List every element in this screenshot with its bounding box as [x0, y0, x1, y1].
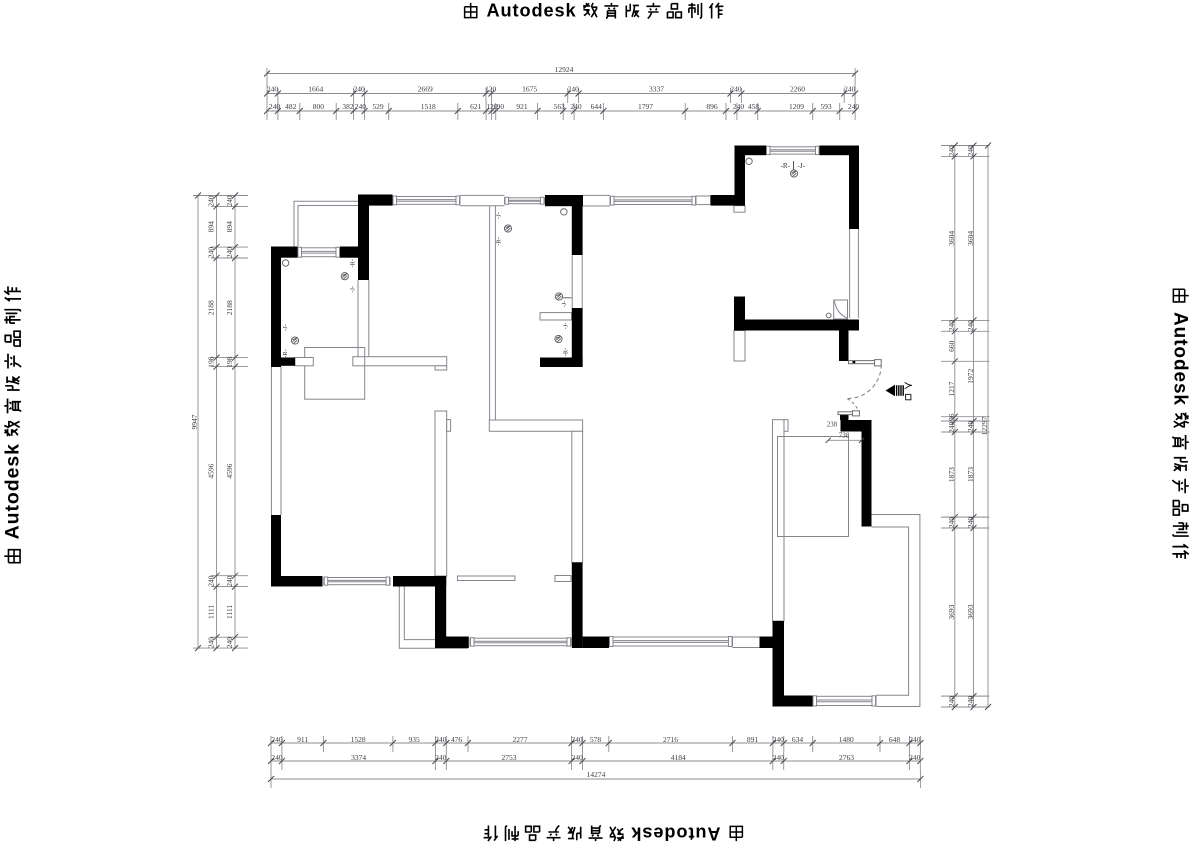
svg-text:1518: 1518 [421, 102, 436, 111]
svg-text:563: 563 [554, 102, 566, 111]
svg-text:240: 240 [966, 320, 975, 332]
svg-text:911: 911 [297, 735, 308, 744]
svg-text:1528: 1528 [351, 735, 366, 744]
svg-text:648: 648 [889, 735, 901, 744]
svg-text:482: 482 [285, 102, 297, 111]
svg-text:240: 240 [947, 696, 956, 708]
svg-text:1111: 1111 [225, 605, 234, 619]
svg-text:935: 935 [408, 735, 420, 744]
svg-text:240: 240 [207, 247, 216, 259]
svg-text:3374: 3374 [351, 753, 366, 762]
svg-text:1217: 1217 [947, 381, 956, 396]
svg-text:240: 240 [271, 753, 283, 762]
svg-text:240: 240 [225, 637, 234, 649]
svg-text:1480: 1480 [839, 735, 854, 744]
svg-text:-J-: -J- [563, 323, 570, 330]
svg-text:4596: 4596 [225, 463, 234, 478]
svg-text:240: 240 [568, 85, 580, 94]
svg-text:-R-: -R- [781, 162, 791, 170]
svg-text:-J-: -J- [561, 301, 568, 308]
svg-text:-J-: -J- [350, 286, 357, 293]
svg-text:578: 578 [590, 735, 602, 744]
svg-text:240: 240 [207, 195, 216, 207]
svg-text:240: 240 [947, 320, 956, 332]
svg-text:921: 921 [516, 102, 528, 111]
svg-text:1675: 1675 [522, 85, 537, 94]
svg-text:240: 240 [207, 637, 216, 649]
svg-text:3604: 3604 [966, 231, 975, 246]
svg-text:2277: 2277 [513, 735, 528, 744]
svg-text:120: 120 [485, 85, 497, 94]
svg-text:198: 198 [207, 356, 216, 368]
svg-text:240: 240 [571, 735, 583, 744]
svg-text:240: 240 [773, 735, 785, 744]
svg-text:12297: 12297 [980, 416, 989, 435]
svg-text:4184: 4184 [671, 753, 686, 762]
svg-text:-R-: -R- [563, 348, 570, 357]
svg-text:1797: 1797 [638, 102, 653, 111]
svg-text:660: 660 [947, 340, 956, 352]
svg-text:240: 240 [353, 85, 365, 94]
svg-text:240: 240 [966, 696, 975, 708]
svg-text:240: 240 [271, 735, 283, 744]
svg-text:2669: 2669 [418, 85, 433, 94]
svg-text:-J-: -J- [798, 162, 806, 170]
svg-text:529: 529 [372, 102, 384, 111]
svg-text:240: 240 [733, 102, 745, 111]
svg-text:14274: 14274 [587, 770, 606, 779]
svg-text:240: 240 [267, 85, 279, 94]
svg-text:621: 621 [470, 102, 482, 111]
svg-text:644: 644 [591, 102, 603, 111]
svg-text:240: 240 [773, 753, 785, 762]
svg-text:458: 458 [748, 102, 760, 111]
svg-text:240: 240 [225, 195, 234, 207]
svg-text:240: 240 [269, 102, 281, 111]
svg-text:90: 90 [497, 102, 505, 111]
svg-text:240: 240 [909, 753, 921, 762]
svg-text:240: 240 [355, 102, 367, 111]
svg-text:240: 240 [207, 575, 216, 587]
svg-text:240: 240 [947, 517, 956, 529]
svg-text:240: 240 [435, 753, 447, 762]
svg-text:3604: 3604 [947, 231, 956, 246]
svg-text:240: 240 [225, 247, 234, 259]
svg-text:3693: 3693 [947, 604, 956, 619]
svg-text:1972: 1972 [966, 368, 975, 383]
svg-text:476: 476 [451, 735, 463, 744]
svg-text:198: 198 [225, 356, 234, 368]
svg-text:2763: 2763 [839, 753, 854, 762]
svg-text:2260: 2260 [790, 85, 805, 94]
svg-text:12924: 12924 [555, 65, 574, 74]
svg-text:593: 593 [820, 102, 832, 111]
svg-text:240: 240 [947, 145, 956, 157]
svg-text:-R-: -R- [495, 237, 502, 246]
svg-text:3693: 3693 [966, 604, 975, 619]
svg-text:238: 238 [827, 421, 838, 428]
svg-text:1111: 1111 [207, 605, 216, 619]
svg-text:896: 896 [706, 102, 718, 111]
svg-text:894: 894 [225, 221, 234, 233]
svg-text:240: 240 [848, 102, 860, 111]
svg-text:96: 96 [947, 413, 956, 421]
svg-text:240: 240 [730, 85, 742, 94]
svg-text:891: 891 [747, 735, 759, 744]
svg-text:240: 240 [844, 85, 856, 94]
svg-text:240: 240 [966, 517, 975, 529]
svg-text:2188: 2188 [207, 300, 216, 315]
svg-text:240: 240 [570, 102, 582, 111]
svg-text:1209: 1209 [789, 102, 804, 111]
svg-text:-J-: -J- [282, 324, 289, 331]
svg-text:1873: 1873 [947, 467, 956, 482]
svg-text:240: 240 [571, 753, 583, 762]
svg-text:738: 738 [839, 431, 850, 439]
svg-text:9947: 9947 [190, 414, 199, 429]
svg-text:4596: 4596 [207, 463, 216, 478]
svg-text:634: 634 [792, 735, 804, 744]
svg-text:240: 240 [909, 735, 921, 744]
svg-text:1873: 1873 [966, 467, 975, 482]
svg-text:240: 240 [966, 421, 975, 433]
svg-text:240: 240 [947, 421, 956, 433]
svg-text:2753: 2753 [502, 753, 517, 762]
svg-text:-J-: -J- [495, 212, 502, 219]
svg-text:240: 240 [966, 145, 975, 157]
svg-text:2716: 2716 [663, 735, 678, 744]
svg-text:800: 800 [313, 102, 325, 111]
svg-text:-R-: -R- [282, 349, 289, 358]
svg-text:-R-: -R- [350, 259, 357, 268]
svg-text:3337: 3337 [649, 85, 664, 94]
svg-text:2188: 2188 [225, 300, 234, 315]
svg-text:1664: 1664 [308, 85, 323, 94]
svg-text:240: 240 [435, 735, 447, 744]
svg-text:894: 894 [207, 221, 216, 233]
svg-text:240: 240 [225, 575, 234, 587]
svg-text:382: 382 [342, 102, 354, 111]
